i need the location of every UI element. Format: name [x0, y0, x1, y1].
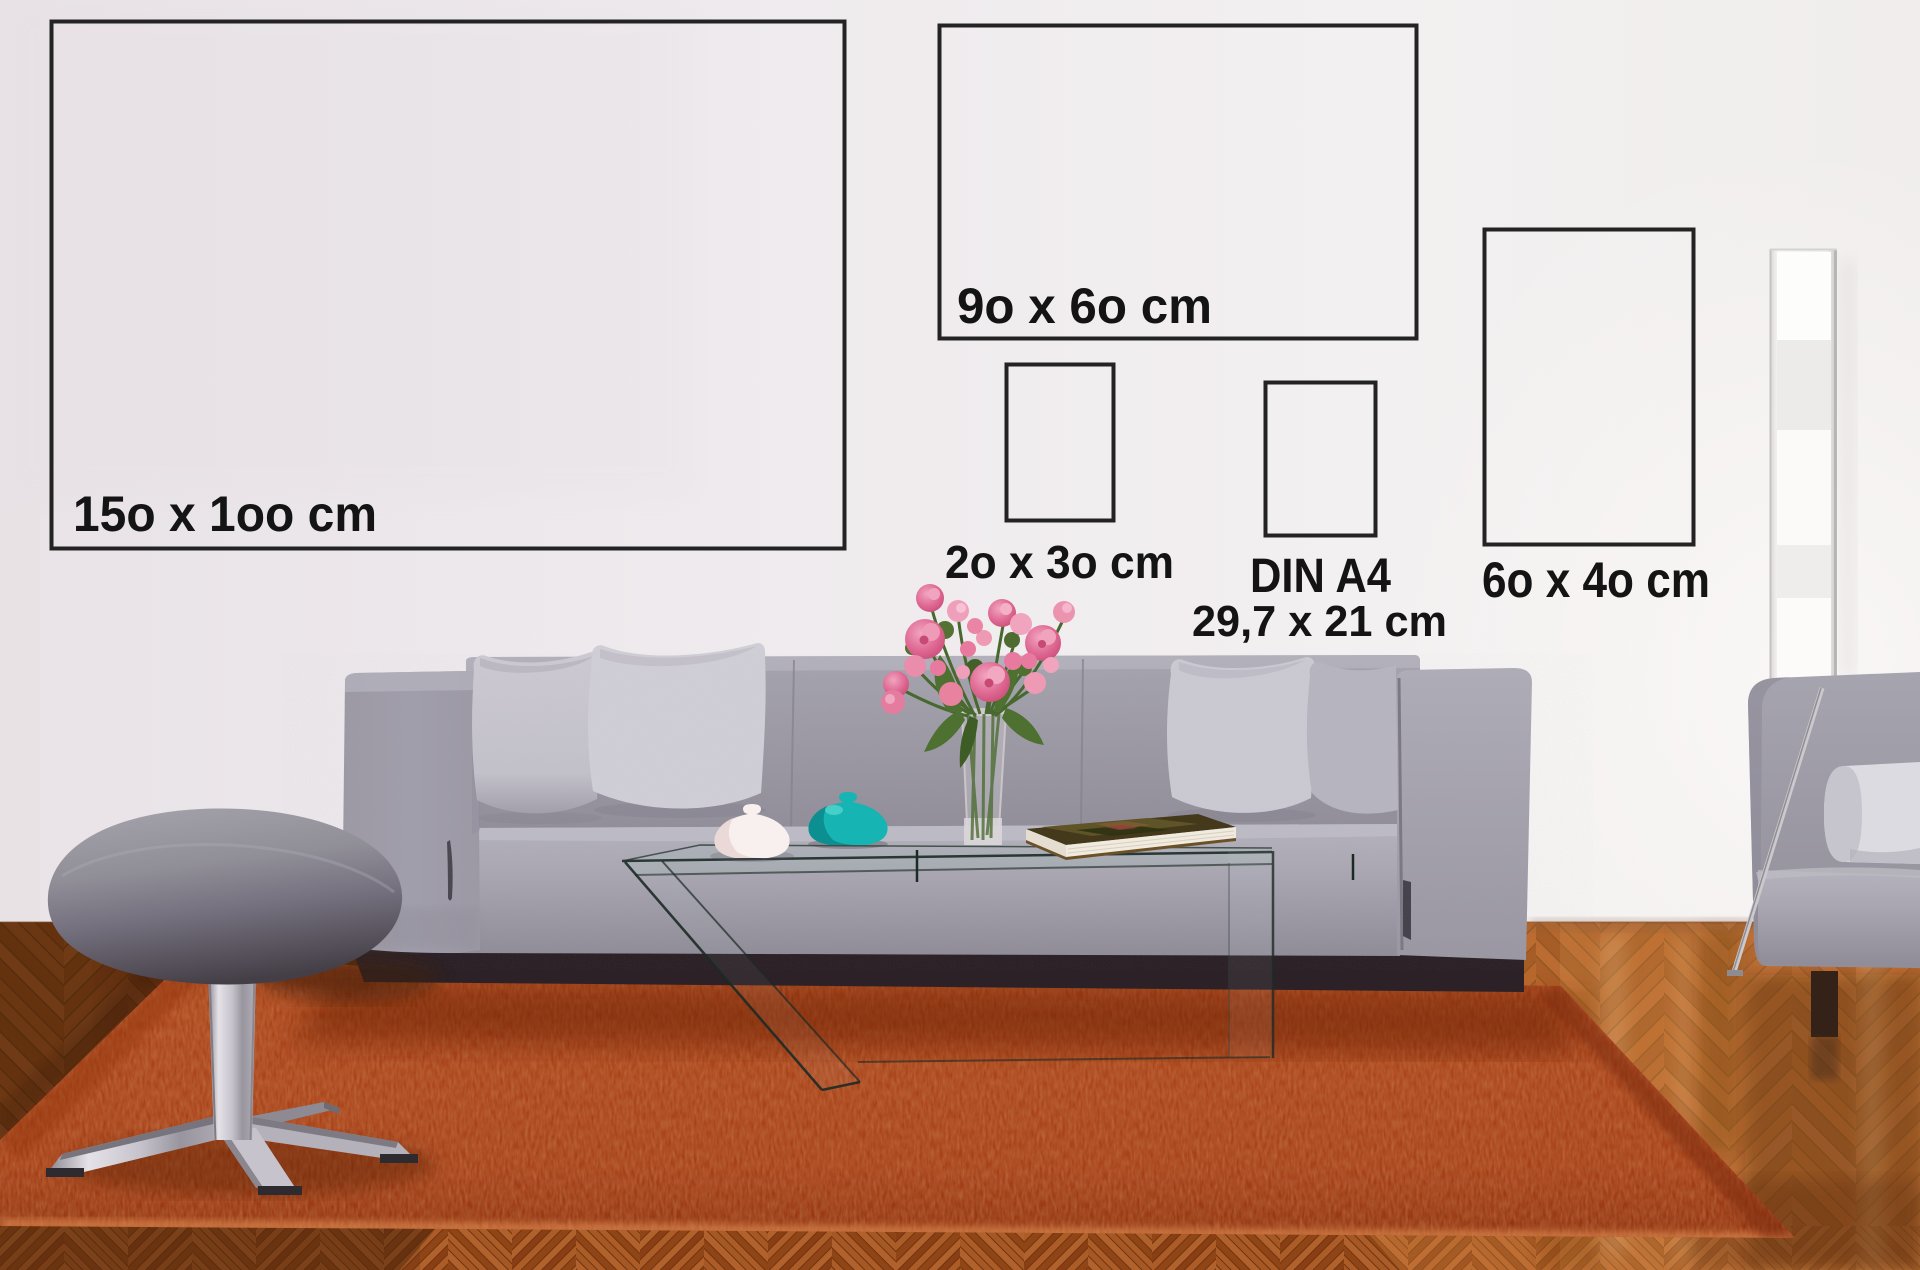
svg-text:15o x 1oo cm: 15o x 1oo cm	[73, 486, 377, 542]
svg-text:9o x 6o cm: 9o x 6o cm	[957, 278, 1212, 334]
svg-text:29,7 x 21 cm: 29,7 x 21 cm	[1192, 597, 1447, 646]
svg-text:DIN A4: DIN A4	[1250, 550, 1391, 603]
svg-text:6o x 4o cm: 6o x 4o cm	[1482, 552, 1710, 608]
svg-text:2o x 3o cm: 2o x 3o cm	[945, 536, 1174, 588]
